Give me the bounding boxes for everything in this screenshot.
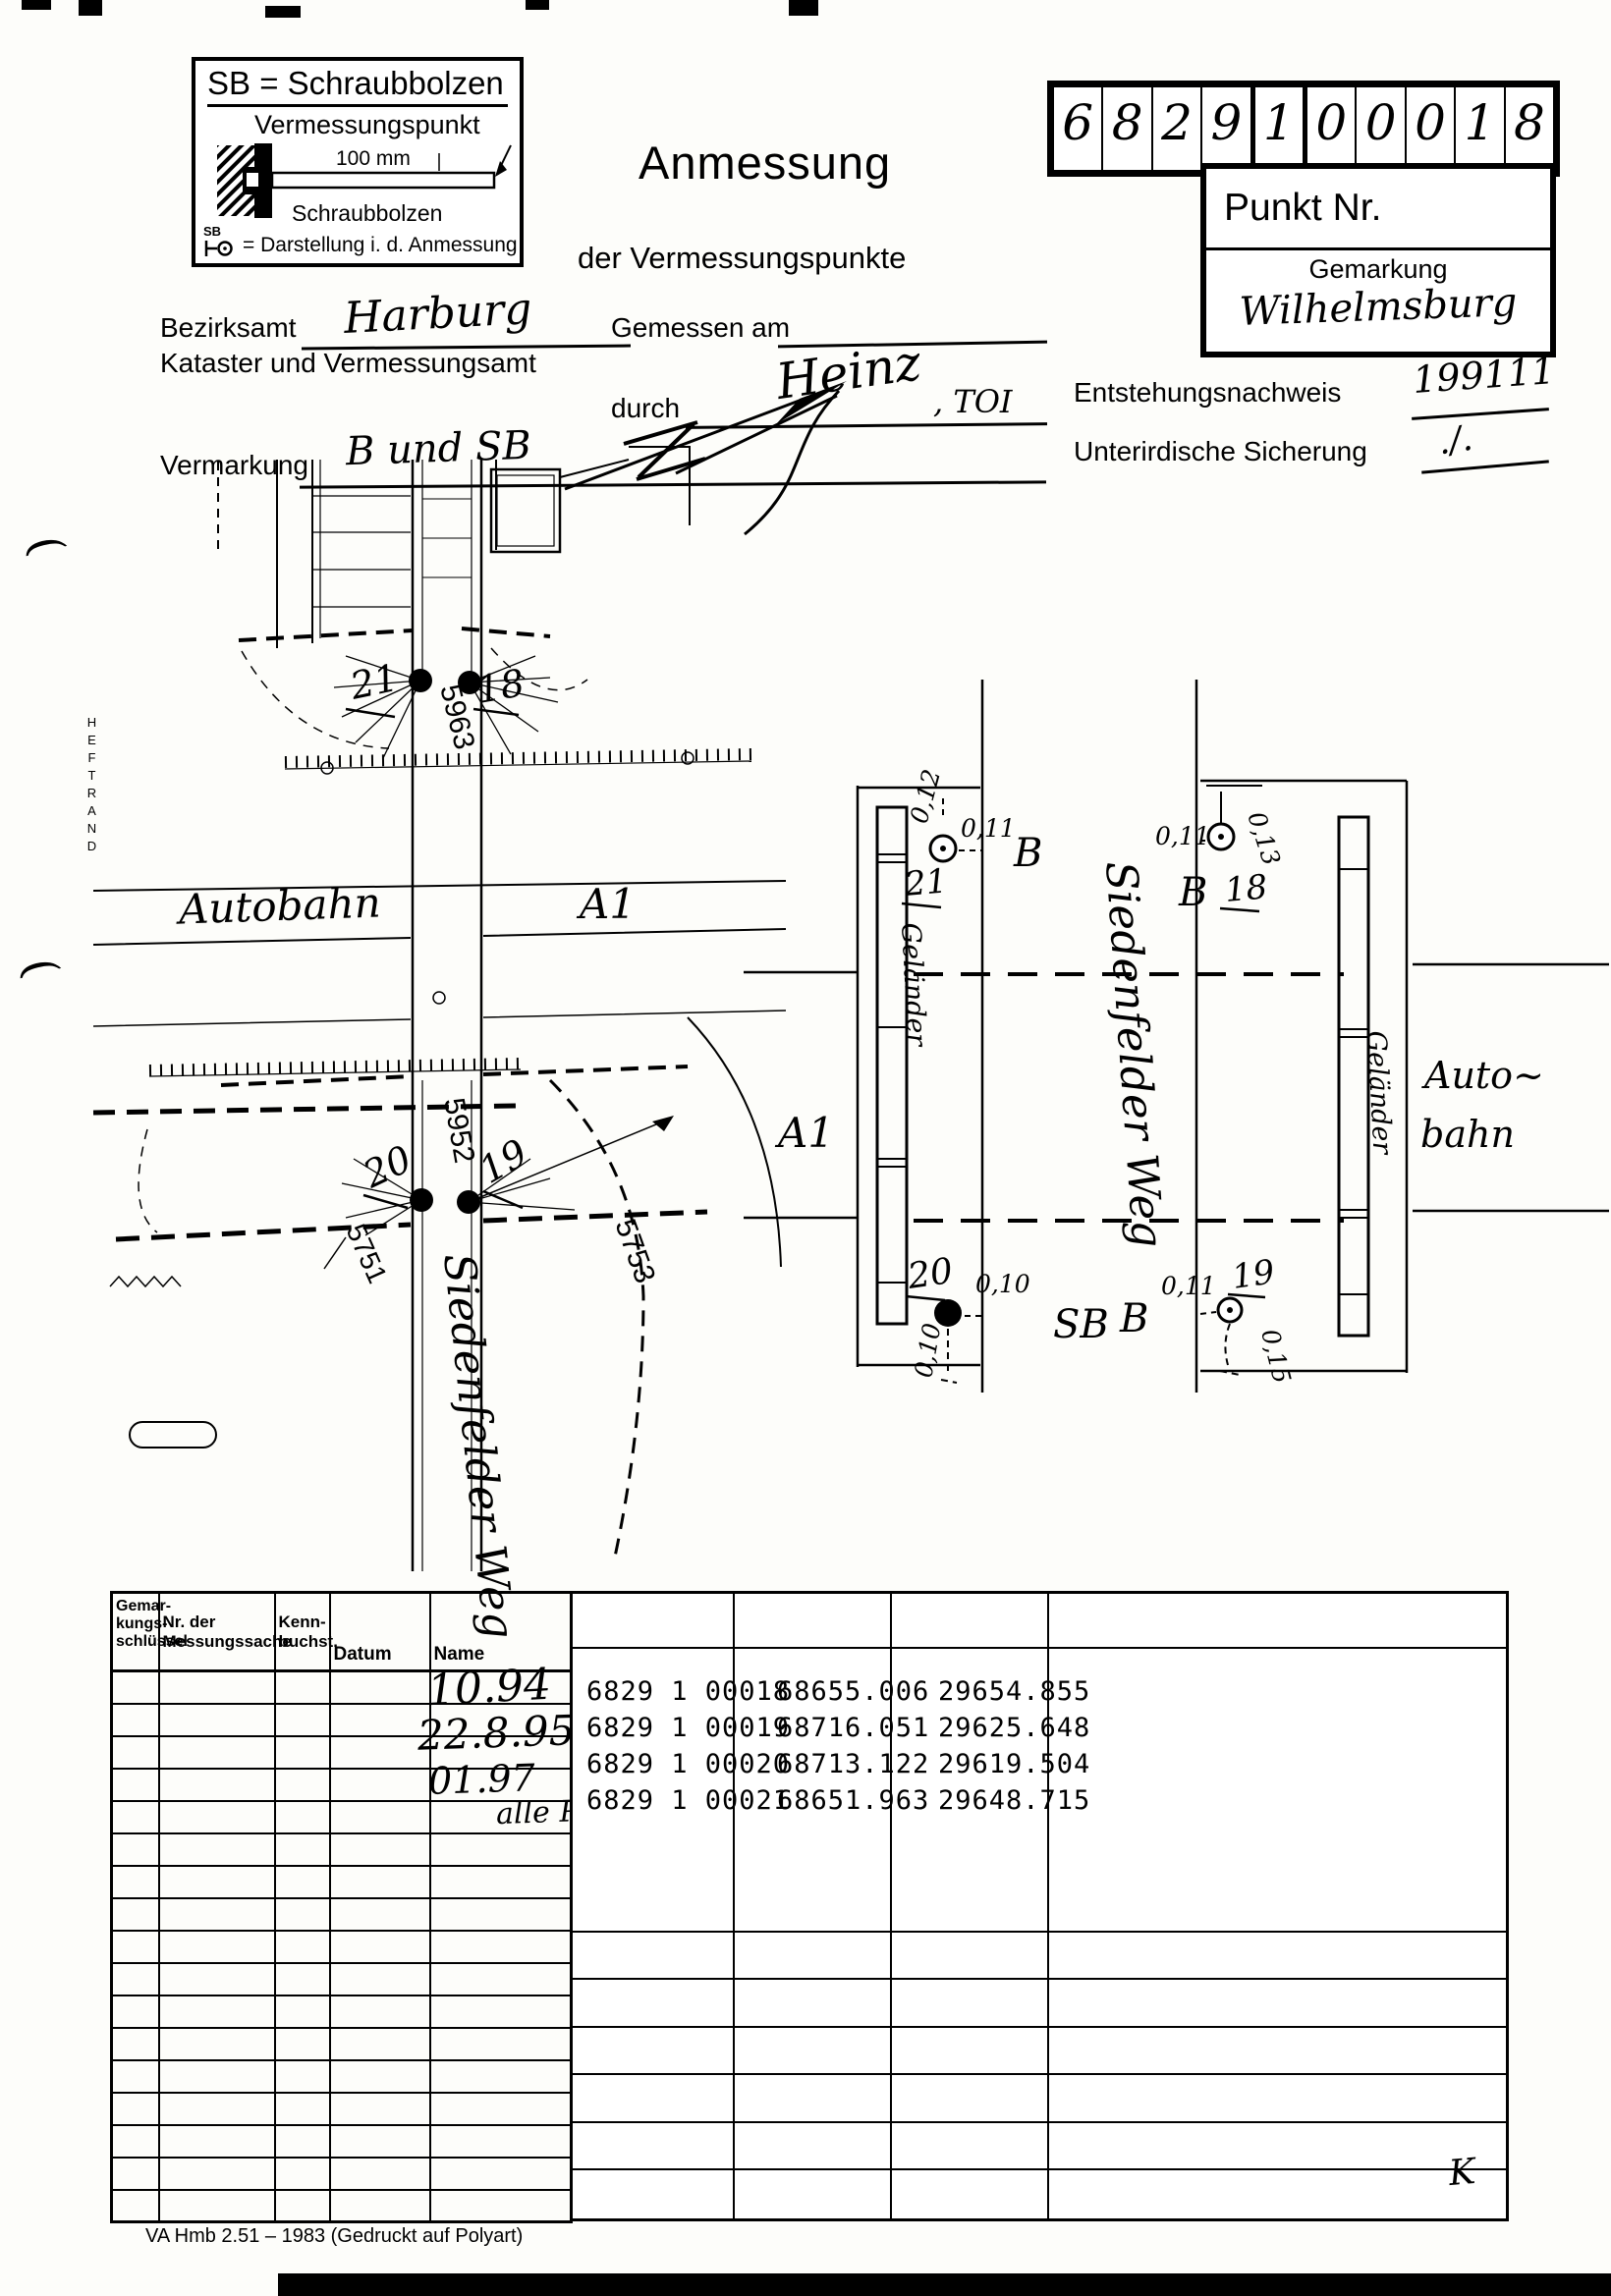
history-empty-row	[112, 2028, 572, 2060]
point-18-offset-left: 0,11	[1155, 822, 1210, 850]
history-empty-cell	[112, 2158, 159, 2190]
point-number-digit: 0	[1357, 87, 1404, 158]
map-parcel-numbers: 5963 5952 5751 5753	[341, 682, 662, 1288]
coords-row-line	[573, 2073, 1506, 2075]
history-header-messungssache: Nr. der Messungssache	[159, 1593, 275, 1671]
coordinate-row: 6829 1 00018 68655.006 29654.855	[573, 1676, 1506, 1713]
point-number-digit: 0	[1407, 87, 1454, 158]
history-empty-cell	[330, 1931, 430, 1963]
history-empty-row	[112, 1833, 572, 1866]
point-19-offset-left: 0,11	[1161, 1272, 1216, 1300]
history-empty-cell	[159, 1833, 275, 1866]
durch-value-title: , TOI	[933, 383, 1013, 420]
coords-row-line	[573, 2168, 1506, 2170]
coordinate-list: 6829 1 00018 68655.006 29654.855 6829 1 …	[573, 1676, 1506, 1822]
history-empty-row	[112, 1995, 572, 2028]
history-empty-row	[112, 1898, 572, 1931]
history-empty-cell	[112, 1995, 159, 2028]
scan-artifact	[79, 0, 102, 16]
point-number-digit: 6	[1054, 87, 1101, 158]
history-empty-cell	[275, 1963, 330, 1995]
scan-artifact	[22, 0, 51, 10]
anmessung-form-page: ( ( HEFTRAND SB = Schraubbolzen Vermessu…	[0, 0, 1611, 2296]
history-empty-cell	[330, 1963, 430, 1995]
history-empty-cell	[159, 1769, 275, 1801]
history-empty-cell	[330, 1898, 430, 1931]
history-empty-cell	[275, 2158, 330, 2190]
sketch-point-18: 0,11 0,13 B 18	[1155, 786, 1286, 915]
bezirksamt-value: Harburg	[343, 284, 533, 344]
sketch-autobahn-label-line2: bahn	[1420, 1113, 1515, 1156]
point-number-digit: 1	[1456, 87, 1503, 158]
history-empty-cell	[275, 2125, 330, 2158]
history-empty-cell	[430, 1931, 572, 1963]
history-empty-cell	[112, 1898, 159, 1931]
coord-x-value: 68716.051	[777, 1713, 929, 1743]
parcel-5751-label: 5751	[341, 1220, 394, 1288]
history-empty-cell	[275, 1736, 330, 1769]
map-parcel-lines	[218, 460, 496, 648]
history-empty-cell	[275, 1671, 330, 1704]
bezirksamt-label: Bezirksamt	[160, 312, 296, 344]
point-18-id: 18	[1223, 867, 1269, 910]
history-header-datum: Datum	[330, 1593, 430, 1671]
survey-point-sb-marker	[934, 1299, 962, 1327]
point-19-offset-below: 0,15	[1255, 1326, 1297, 1386]
history-empty-cell	[275, 1801, 330, 1833]
point-number-digit: 8	[1506, 87, 1553, 158]
point-number-digit: 9	[1202, 87, 1250, 158]
history-empty-cell	[430, 2028, 572, 2060]
history-empty-cell	[112, 1671, 159, 1704]
history-empty-cell	[430, 1866, 572, 1898]
survey-point-symbol-icon	[203, 239, 235, 258]
margin-mark: (	[13, 948, 69, 986]
history-empty-cell	[159, 1995, 275, 2028]
history-empty-cell	[430, 2158, 572, 2190]
point-20-offset-below: 0,10	[909, 1321, 946, 1380]
legend-point-label: Vermessungspunkt	[254, 110, 480, 140]
history-empty-cell	[330, 1671, 430, 1704]
map-building-outlines	[491, 447, 690, 552]
history-empty-cell	[112, 1736, 159, 1769]
history-empty-cell	[159, 1898, 275, 1931]
gemessen-am-label: Gemessen am	[611, 312, 790, 344]
gelaender-left-label: Geländer	[895, 922, 932, 1049]
history-empty-cell	[112, 1963, 159, 1995]
history-empty-cell	[330, 1995, 430, 2028]
coords-row-line	[573, 2026, 1506, 2028]
history-empty-cell	[330, 2125, 430, 2158]
history-empty-cell	[330, 1801, 430, 1833]
point-number-digit: 0	[1307, 87, 1355, 158]
history-empty-cell	[330, 1769, 430, 1801]
point-20-id: 20	[905, 1251, 956, 1297]
coordinates-table: 6829 1 00018 68655.006 29654.855 6829 1 …	[570, 1591, 1509, 2221]
legend-bolt-label: Schraubbolzen	[292, 200, 442, 227]
legend-dimension: 100 mm	[333, 147, 414, 171]
point-number-digit: 1	[1255, 87, 1303, 158]
history-empty-row	[112, 2093, 572, 2125]
parcel-5753-label: 5753	[608, 1215, 661, 1287]
map-point-21-label: 21	[346, 656, 402, 708]
history-empty-cell	[330, 2060, 430, 2093]
unterirdische-sicherung-label: Unterirdische Sicherung	[1074, 436, 1367, 467]
history-empty-cell	[159, 1963, 275, 1995]
page-title: Anmessung	[639, 136, 891, 190]
coord-y-value: 29648.715	[938, 1785, 1090, 1816]
history-empty-cell	[112, 2060, 159, 2093]
history-empty-row	[112, 2158, 572, 2190]
history-empty-row	[112, 1963, 572, 1995]
history-empty-cell	[330, 2158, 430, 2190]
scan-artifact-bottom-bar	[278, 2273, 1611, 2296]
scan-artifact	[789, 0, 818, 16]
history-empty-row	[112, 2190, 572, 2222]
coordinate-row: 6829 1 00020 68713.122 29619.504	[573, 1749, 1506, 1785]
history-empty-cell	[430, 1995, 572, 2028]
coord-y-value: 29625.648	[938, 1713, 1090, 1743]
cadastral-map-drawing: 21 18 20 19 5963 5952 5751 5753 Siedenfe…	[86, 452, 796, 1581]
history-empty-cell	[159, 1736, 275, 1769]
history-empty-cell	[159, 2093, 275, 2125]
history-empty-cell	[112, 2190, 159, 2222]
point-19-id: 19	[1230, 1252, 1277, 1297]
corner-handwritten-mark: K	[1447, 2152, 1476, 2194]
history-entry-2-datum: 22.8.95	[417, 1706, 576, 1760]
history-table-header-row: Gemar- kungs- schlüssel Nr. der Messungs…	[112, 1593, 572, 1671]
north-arrow-head	[776, 381, 847, 424]
map-street-name-label: Siedenfelder Weg	[433, 1251, 524, 1641]
history-empty-cell	[275, 1704, 330, 1736]
map-point-labels: 21 18 20 19	[346, 656, 535, 1208]
survey-point-19-marker	[457, 1190, 480, 1214]
point-number-digit: 2	[1153, 87, 1200, 158]
form-footer-imprint: VA Hmb 2.51 – 1983 (Gedruckt auf Polyart…	[145, 2225, 523, 2248]
legend-symbol-row: SB = Darstellung i. d. Anmessung	[203, 224, 518, 258]
history-header-gemarkungsschluessel: Gemar- kungs- schlüssel	[112, 1593, 159, 1671]
history-empty-cell	[275, 1769, 330, 1801]
history-empty-cell	[275, 1898, 330, 1931]
history-empty-cell	[430, 2190, 572, 2222]
coord-y-value: 29654.855	[938, 1676, 1090, 1707]
sketch-street-name-label: Siedenfelder Weg	[1095, 859, 1172, 1249]
history-empty-cell	[330, 2190, 430, 2222]
entstehungsnachweis-value: 199111	[1412, 349, 1557, 402]
coordinate-row: 6829 1 00021 68651.963 29648.715	[573, 1785, 1506, 1822]
map-arrow-head	[652, 1116, 674, 1131]
sketch-autobahn-label-line1: Auto~	[1421, 1054, 1544, 1097]
history-empty-cell	[159, 1866, 275, 1898]
point-18-offset-right: 0,13	[1242, 808, 1286, 869]
map-point-18-label: 18	[473, 661, 528, 712]
history-empty-row	[112, 2125, 572, 2158]
history-empty-row	[112, 2060, 572, 2093]
coords-row-line	[573, 1931, 1506, 1933]
gelaender-right-label: Geländer	[1361, 1030, 1398, 1157]
history-empty-cell	[159, 2158, 275, 2190]
kataster-label: Kataster und Vermessungsamt	[160, 348, 536, 379]
map-autobahn-lines	[93, 754, 786, 1113]
history-empty-cell	[330, 2093, 430, 2125]
punkt-nr-box: Punkt Nr. Gemarkung Wilhelmsburg	[1200, 163, 1556, 357]
history-empty-cell	[430, 2060, 572, 2093]
gemarkung-value: Wilhelmsburg	[1205, 279, 1550, 336]
history-empty-cell	[112, 1866, 159, 1898]
map-a1-label: A1	[580, 880, 636, 928]
page-subtitle: der Vermessungspunkte	[578, 241, 906, 276]
history-empty-cell	[430, 2125, 572, 2158]
history-empty-cell	[112, 2028, 159, 2060]
history-empty-cell	[159, 2125, 275, 2158]
sketch-point-20: 20 0,10 0,10 SB	[905, 1251, 1109, 1383]
scan-artifact	[526, 0, 549, 10]
coord-x-value: 68713.122	[777, 1749, 929, 1779]
bridge-detail-sketch: 0,12 0,11 21 B 0,11 0,13 B 18 20 0,10 0,	[740, 674, 1611, 1396]
sketch-point-19: 0,11 19 B 0,15	[1119, 1252, 1297, 1386]
legend-bolt-rod	[272, 173, 494, 188]
history-empty-cell	[159, 2190, 275, 2222]
coord-y-value: 29619.504	[938, 1749, 1090, 1779]
history-empty-cell	[330, 2028, 430, 2060]
history-empty-cell	[275, 2028, 330, 2060]
history-empty-cell	[112, 1931, 159, 1963]
scan-artifact	[265, 6, 301, 18]
coord-x-value: 68655.006	[777, 1676, 929, 1707]
coords-row-line	[573, 1647, 1506, 1649]
history-empty-cell	[275, 1931, 330, 1963]
legend-symbol-desc: = Darstellung i. d. Anmessung	[243, 234, 518, 258]
history-header-name: Name	[430, 1593, 572, 1671]
legend-title: SB = Schraubbolzen	[207, 65, 508, 107]
point-21-offset-left: 0,12	[905, 766, 946, 826]
point-number-digit: 8	[1103, 87, 1150, 158]
point-20-mark: SB	[1053, 1302, 1109, 1347]
history-empty-cell	[275, 1833, 330, 1866]
history-empty-cell	[330, 1866, 430, 1898]
history-empty-cell	[275, 2060, 330, 2093]
history-empty-cell	[430, 1963, 572, 1995]
history-empty-cell	[112, 1769, 159, 1801]
history-empty-cell	[275, 2093, 330, 2125]
survey-point-20-marker	[410, 1188, 433, 1212]
history-empty-cell	[159, 1801, 275, 1833]
sketch-railing-left	[877, 807, 907, 1324]
point-21-id: 21	[902, 861, 949, 904]
unterirdische-sicherung-value: ./.	[1435, 418, 1474, 463]
entstehungsnachweis-line	[1412, 408, 1549, 420]
history-empty-cell	[430, 1898, 572, 1931]
history-empty-cell	[159, 1671, 275, 1704]
history-empty-cell	[275, 2190, 330, 2222]
history-empty-cell	[112, 2125, 159, 2158]
legend-box: SB = Schraubbolzen Vermessungspunkt 100 …	[192, 57, 524, 267]
point-19-mark: B	[1119, 1296, 1148, 1341]
sketch-a1-label: A1	[774, 1109, 834, 1157]
coord-point-id: 6829 1 00021	[586, 1785, 790, 1816]
entstehungsnachweis-label: Entstehungsnachweis	[1074, 377, 1341, 409]
coords-row-line	[573, 2121, 1506, 2123]
history-empty-cell	[330, 1833, 430, 1866]
history-empty-cell	[430, 1833, 572, 1866]
point-21-mark: B	[1013, 831, 1042, 876]
margin-mark: (	[19, 525, 75, 564]
survey-point-21-marker	[409, 669, 432, 692]
history-empty-cell	[159, 1704, 275, 1736]
coord-point-id: 6829 1 00018	[586, 1676, 790, 1707]
history-empty-cell	[112, 1704, 159, 1736]
history-empty-cell	[159, 2060, 275, 2093]
history-empty-cell	[112, 2093, 159, 2125]
history-empty-cell	[430, 2093, 572, 2125]
history-empty-cell	[112, 1801, 159, 1833]
history-empty-cell	[159, 2028, 275, 2060]
history-empty-cell	[275, 1995, 330, 2028]
coords-row-line	[573, 1978, 1506, 1980]
history-empty-cell	[275, 1866, 330, 1898]
history-empty-row	[112, 1931, 572, 1963]
history-empty-cell	[159, 1931, 275, 1963]
point-20-offset-right: 0,10	[975, 1270, 1030, 1298]
legend-symbol-sb: SB	[203, 224, 221, 239]
punkt-nr-label: Punkt Nr.	[1206, 169, 1550, 250]
coord-x-value: 68651.963	[777, 1785, 929, 1816]
history-empty-cell	[330, 1704, 430, 1736]
map-autobahn-label: Autobahn	[178, 878, 381, 933]
history-header-kennbuchst: Kenn- buchst.	[275, 1593, 330, 1671]
history-empty-cell	[112, 1833, 159, 1866]
history-empty-cell	[330, 1736, 430, 1769]
history-empty-row	[112, 1866, 572, 1898]
point-21-offset-right: 0,11	[961, 814, 1016, 843]
coord-point-id: 6829 1 00019	[586, 1713, 790, 1743]
point-18-mark: B	[1178, 870, 1207, 915]
coordinate-row: 6829 1 00019 68716.051 29625.648	[573, 1713, 1506, 1749]
coord-point-id: 6829 1 00020	[586, 1749, 790, 1779]
